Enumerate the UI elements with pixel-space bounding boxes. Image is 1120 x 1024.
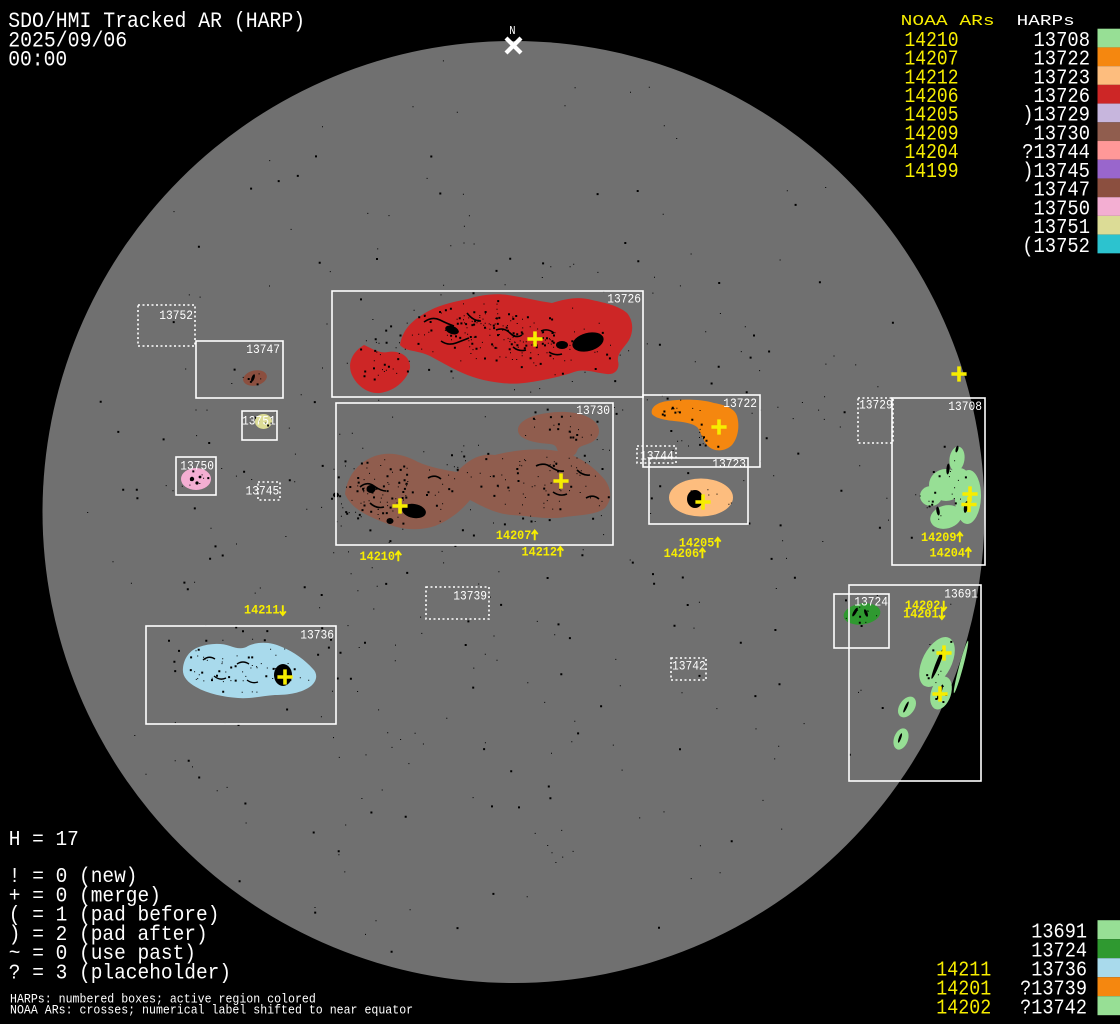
- svg-text:00:00: 00:00: [8, 48, 67, 73]
- svg-text:13747: 13747: [246, 342, 280, 357]
- svg-text:14204: 14204: [930, 546, 966, 561]
- svg-text:NOAA ARs: crosses; numerical l: NOAA ARs: crosses; numerical label shift…: [10, 1003, 413, 1018]
- svg-text:HARPs: HARPs: [1017, 14, 1075, 30]
- svg-text:N: N: [509, 24, 515, 38]
- svg-text:13742: 13742: [672, 659, 706, 674]
- svg-text:13744: 13744: [640, 449, 674, 464]
- svg-text:14212: 14212: [522, 545, 558, 560]
- svg-text:13739: 13739: [453, 589, 487, 604]
- svg-text:H = 17: H = 17: [9, 829, 79, 852]
- svg-text:14201: 14201: [903, 607, 939, 622]
- svg-text:? = 3 (placeholder): ? = 3 (placeholder): [9, 962, 231, 985]
- svg-text:13736: 13736: [300, 628, 334, 643]
- svg-text:13722: 13722: [723, 396, 757, 411]
- svg-text:14209: 14209: [921, 530, 957, 545]
- svg-text:14211: 14211: [244, 603, 280, 618]
- svg-text:13751: 13751: [242, 414, 276, 429]
- svg-text:14207: 14207: [496, 528, 532, 543]
- svg-text:14206: 14206: [664, 546, 700, 561]
- svg-text:?13742: ?13742: [1020, 998, 1087, 1021]
- svg-text:13752: 13752: [159, 308, 193, 323]
- svg-text:13724: 13724: [854, 595, 888, 610]
- svg-text:13691: 13691: [944, 587, 978, 602]
- svg-text:14199: 14199: [905, 161, 959, 184]
- svg-text:13723: 13723: [712, 457, 746, 472]
- svg-text:13730: 13730: [576, 403, 610, 418]
- svg-text:NOAA ARs: NOAA ARs: [901, 14, 995, 30]
- svg-text:14202: 14202: [936, 998, 991, 1021]
- svg-text:(13752: (13752: [1022, 236, 1090, 259]
- svg-text:14210: 14210: [360, 549, 396, 564]
- svg-text:13729: 13729: [859, 398, 893, 413]
- svg-text:13726: 13726: [607, 292, 641, 307]
- svg-text:13745: 13745: [246, 484, 280, 499]
- svg-text:13750: 13750: [180, 459, 214, 474]
- svg-text:13708: 13708: [948, 399, 982, 414]
